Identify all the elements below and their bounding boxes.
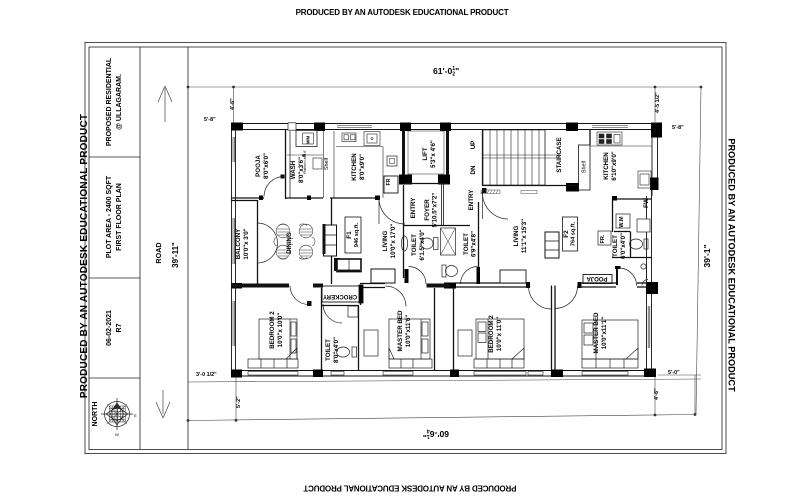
svg-text:@ ULLAGARAM.: @ ULLAGARAM. (116, 74, 123, 130)
svg-text:PRODUCED BY AN AUTODESK EDUCAT: PRODUCED BY AN AUTODESK EDUCATIONAL PROD… (296, 8, 509, 17)
svg-text:10'0"x 11'0": 10'0"x 11'0" (496, 317, 503, 351)
svg-text:KITCHEN: KITCHEN (351, 153, 358, 181)
svg-text:F1: F1 (346, 231, 353, 239)
svg-text:MASTER BED: MASTER BED (397, 310, 404, 351)
svg-text:LIFT: LIFT (422, 147, 429, 160)
svg-text:STAIRCASE: STAIRCASE (556, 137, 563, 172)
svg-text:5'10.5"x7'2": 5'10.5"x7'2" (432, 193, 439, 228)
svg-text:11'1"x 15'3": 11'1"x 15'3" (521, 219, 528, 253)
svg-text:TOILET: TOILET (612, 235, 619, 257)
svg-text:10'0"x 10'0": 10'0"x 10'0" (277, 313, 284, 348)
svg-text:R7: R7 (116, 323, 123, 332)
svg-text:FW: FW (643, 198, 650, 208)
svg-text:WM: WM (306, 136, 311, 144)
svg-text:FOYER: FOYER (424, 199, 431, 221)
svg-text:8'0"x9'0": 8'0"x9'0" (359, 154, 366, 180)
svg-text:5'-8": 5'-8" (204, 117, 216, 123)
svg-text:PRODUCED BY AN AUTODESK EDUCAT: PRODUCED BY AN AUTODESK EDUCATIONAL PROD… (303, 483, 516, 492)
svg-text:ROAD: ROAD (154, 242, 163, 263)
svg-text:CROCKERY: CROCKERY (323, 293, 357, 299)
svg-text:Platform asa 6': Platform asa 6' (303, 150, 307, 174)
svg-text:6'9"x4'8": 6'9"x4'8" (471, 231, 478, 257)
svg-text:NORTH: NORTH (92, 402, 99, 427)
svg-text:F2: F2 (563, 230, 570, 238)
svg-text:PLOT AREA - 2400 SQFT: PLOT AREA - 2400 SQFT (106, 175, 113, 258)
svg-text:FR: FR (386, 178, 392, 185)
svg-text:MASTER BED: MASTER BED (593, 312, 600, 353)
svg-text:10'0"x 3'0": 10'0"x 3'0" (243, 228, 250, 259)
svg-text:5'3"x 4'6": 5'3"x 4'6" (430, 140, 437, 168)
svg-text:4'-6": 4'-6" (230, 98, 236, 110)
svg-text:6'1.5"x4'0": 6'1.5"x4'0" (419, 229, 426, 260)
svg-text:5'-2": 5'-2" (236, 396, 242, 408)
svg-text:DINING: DINING (286, 232, 293, 254)
svg-text:10'0"x11'1": 10'0"x11'1" (601, 317, 608, 350)
svg-text:PRODUCED BY AN AUTODESK EDUCAT: PRODUCED BY AN AUTODESK EDUCATIONAL PROD… (79, 114, 90, 398)
svg-text:10'0"x11'6": 10'0"x11'6" (405, 315, 412, 348)
svg-text:ENTRY: ENTRY (468, 189, 475, 211)
svg-text:LIVING: LIVING (382, 231, 389, 252)
svg-text:FR.: FR. (600, 234, 606, 243)
svg-text:39'-1": 39'-1" (702, 244, 712, 267)
svg-text:4'-6": 4'-6" (654, 388, 660, 400)
svg-text:BEDROOM 2: BEDROOM 2 (269, 311, 276, 349)
svg-text:10'0"x 17'0": 10'0"x 17'0" (390, 224, 397, 259)
svg-text:UP: UP (470, 141, 477, 150)
svg-text:Shelf: Shelf (582, 160, 588, 173)
svg-text:764 sq.ft.: 764 sq.ft. (571, 221, 577, 246)
svg-text:8'0"x6'0": 8'0"x6'0" (263, 153, 270, 179)
svg-text:W.M: W.M (619, 216, 625, 228)
svg-text:Shelf: Shelf (324, 157, 330, 170)
svg-text:5'-0": 5'-0" (668, 370, 680, 376)
svg-text:61'-012": 61'-012" (433, 66, 459, 78)
svg-text:DN: DN (470, 165, 477, 174)
svg-text:39'-11": 39'-11" (171, 242, 180, 268)
svg-text:E: E (134, 413, 137, 418)
svg-text:6'0"x4'0": 6'0"x4'0" (620, 233, 627, 259)
svg-text:06-02-2021: 06-02-2021 (106, 310, 113, 346)
svg-text:8'0"x4'0": 8'0"x4'0" (333, 337, 340, 363)
svg-text:4'-5 1/2": 4'-5 1/2" (655, 92, 661, 113)
svg-text:KITCHEN: KITCHEN (603, 152, 610, 180)
svg-text:WASH: WASH (290, 160, 297, 179)
svg-text:BALCONY: BALCONY (235, 228, 242, 259)
svg-text:W: W (115, 432, 119, 437)
svg-text:POOJA: POOJA (255, 155, 262, 177)
svg-text:TOILET: TOILET (411, 234, 418, 256)
svg-text:946 sq.ft.: 946 sq.ft. (354, 222, 360, 247)
svg-text:3'-0 1/2": 3'-0 1/2" (196, 372, 217, 378)
svg-text:FIRST FLOOR PLAN: FIRST FLOOR PLAN (116, 183, 123, 251)
svg-text:POOJA: POOJA (586, 275, 608, 281)
svg-text:TOILET: TOILET (463, 233, 470, 255)
svg-text:PROPOSED RESIDENTIAL: PROPOSED RESIDENTIAL (106, 57, 113, 146)
svg-text:5'-8": 5'-8" (672, 125, 684, 131)
svg-text:TOILET: TOILET (325, 339, 332, 361)
svg-text:ENTRY: ENTRY (410, 197, 417, 219)
svg-text:60'-614": 60'-614" (423, 427, 449, 439)
svg-text:PRODUCED BY AN AUTODESK EDUCAT: PRODUCED BY AN AUTODESK EDUCATIONAL PROD… (727, 138, 737, 392)
svg-text:6'10"x9'0": 6'10"x9'0" (611, 151, 618, 181)
svg-text:LIVING: LIVING (513, 226, 520, 247)
svg-text:BEDROOM 2: BEDROOM 2 (488, 315, 495, 353)
